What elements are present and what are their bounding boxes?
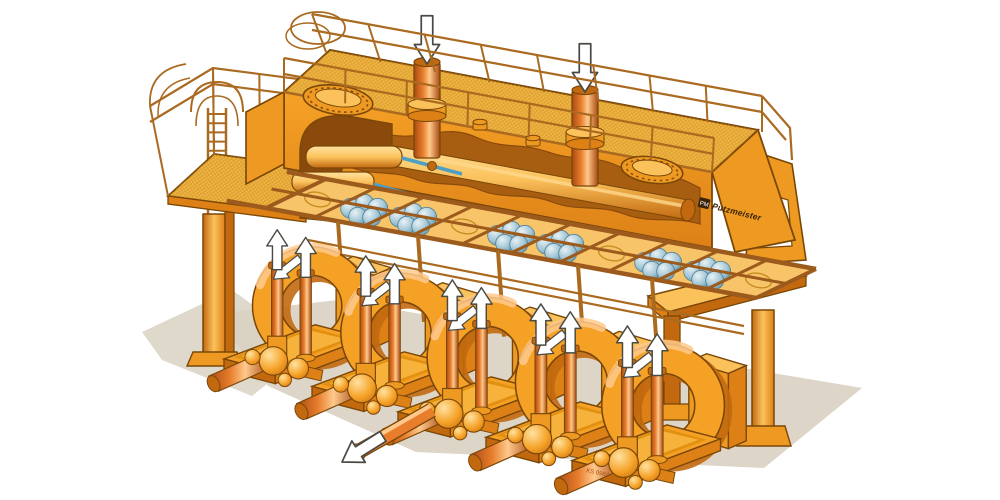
dampener-cylinder-1 [306,146,402,168]
illustration-stage: PM Putzmeister [0,0,1000,500]
railing-post [467,92,468,126]
railing-post [406,81,407,115]
bench-leg [752,310,774,428]
railing-post [590,115,591,149]
railing-post [529,104,530,138]
platform-column [203,214,225,354]
standpipe-1 [408,58,446,159]
railing-post [213,68,214,154]
machine-illustration: PM Putzmeister [0,0,1000,500]
